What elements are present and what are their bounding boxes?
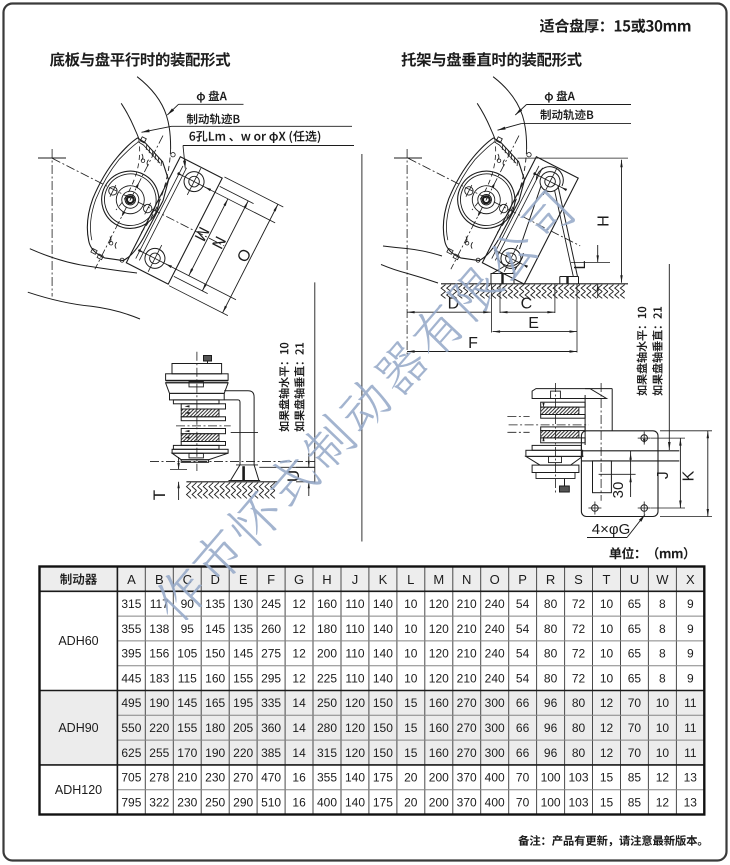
svg-text:240: 240 (485, 597, 505, 611)
svg-text:300: 300 (485, 746, 505, 760)
svg-text:110: 110 (345, 647, 364, 661)
svg-text:65: 65 (628, 597, 642, 611)
svg-text:70: 70 (628, 746, 642, 760)
svg-text:72: 72 (572, 597, 586, 611)
svg-text:11: 11 (684, 721, 697, 735)
svg-text:360: 360 (261, 721, 281, 735)
svg-text:54: 54 (516, 597, 530, 611)
svg-text:W: W (656, 572, 669, 587)
svg-text:12: 12 (292, 671, 306, 685)
svg-text:A: A (127, 572, 136, 587)
svg-text:10: 10 (404, 647, 418, 661)
svg-text:ADH90: ADH90 (58, 721, 98, 735)
svg-text:J: J (352, 572, 359, 587)
svg-text:120: 120 (429, 647, 449, 661)
svg-text:110: 110 (345, 622, 364, 636)
svg-text:795: 795 (121, 795, 141, 809)
svg-text:270: 270 (233, 771, 253, 785)
svg-text:10: 10 (600, 671, 614, 685)
svg-text:80: 80 (572, 721, 586, 735)
svg-text:315: 315 (317, 746, 337, 760)
svg-text:150: 150 (205, 647, 225, 661)
svg-text:20: 20 (404, 795, 418, 809)
svg-text:10: 10 (656, 696, 670, 710)
svg-text:96: 96 (544, 746, 558, 760)
svg-text:200: 200 (429, 771, 449, 785)
svg-text:K: K (379, 572, 388, 587)
svg-text:370: 370 (457, 795, 477, 809)
svg-text:210: 210 (457, 597, 477, 611)
svg-text:15: 15 (404, 696, 418, 710)
svg-text:12: 12 (600, 721, 614, 735)
svg-text:175: 175 (373, 771, 393, 785)
svg-text:140: 140 (345, 795, 365, 809)
svg-text:103: 103 (568, 771, 588, 785)
svg-text:9: 9 (687, 647, 694, 661)
svg-text:175: 175 (373, 795, 393, 809)
svg-text:183: 183 (149, 671, 169, 685)
svg-text:F: F (468, 335, 478, 352)
svg-text:445: 445 (121, 671, 141, 685)
svg-text:705: 705 (121, 771, 141, 785)
svg-text:8: 8 (659, 647, 666, 661)
svg-text:120: 120 (345, 696, 365, 710)
svg-text:245: 245 (261, 597, 281, 611)
svg-text:270: 270 (457, 696, 477, 710)
svg-text:385: 385 (261, 746, 281, 760)
svg-text:12: 12 (292, 597, 306, 611)
svg-text:L: L (572, 260, 589, 269)
svg-text:54: 54 (516, 622, 530, 636)
svg-text:R: R (546, 572, 555, 587)
svg-text:170: 170 (177, 746, 197, 760)
svg-text:335: 335 (261, 696, 281, 710)
svg-text:8: 8 (659, 671, 666, 685)
svg-text:355: 355 (317, 771, 337, 785)
svg-text:14: 14 (292, 746, 306, 760)
svg-text:250: 250 (205, 795, 225, 809)
svg-text:400: 400 (485, 795, 505, 809)
svg-text:12: 12 (292, 622, 306, 636)
svg-text:120: 120 (429, 671, 449, 685)
svg-text:270: 270 (457, 746, 477, 760)
svg-text:135: 135 (233, 622, 253, 636)
svg-text:315: 315 (121, 597, 141, 611)
svg-text:15: 15 (404, 746, 418, 760)
svg-text:80: 80 (544, 597, 558, 611)
svg-text:155: 155 (233, 671, 253, 685)
svg-text:96: 96 (544, 696, 558, 710)
svg-text:230: 230 (205, 771, 225, 785)
svg-text:180: 180 (205, 721, 225, 735)
svg-text:N: N (462, 572, 471, 587)
svg-text:70: 70 (516, 795, 530, 809)
svg-text:160: 160 (205, 671, 225, 685)
svg-text:300: 300 (485, 721, 505, 735)
svg-text:11: 11 (684, 746, 697, 760)
svg-text:80: 80 (544, 671, 558, 685)
svg-text:14: 14 (292, 696, 306, 710)
svg-text:P: P (518, 572, 527, 587)
svg-text:9: 9 (687, 622, 694, 636)
svg-text:14: 14 (292, 721, 306, 735)
svg-text:C: C (521, 296, 533, 313)
svg-text:15: 15 (404, 721, 418, 735)
svg-text:80: 80 (544, 647, 558, 661)
svg-text:165: 165 (205, 696, 225, 710)
svg-text:F: F (267, 572, 275, 587)
svg-text:9: 9 (687, 671, 694, 685)
svg-text:66: 66 (516, 746, 530, 760)
svg-text:625: 625 (121, 746, 141, 760)
svg-text:205: 205 (233, 721, 253, 735)
svg-text:280: 280 (317, 721, 337, 735)
svg-text:145: 145 (205, 622, 225, 636)
svg-text:370: 370 (457, 771, 477, 785)
svg-text:145: 145 (177, 696, 197, 710)
svg-text:72: 72 (572, 671, 586, 685)
svg-text:X: X (686, 572, 695, 587)
svg-text:103: 103 (568, 795, 588, 809)
svg-text:10: 10 (600, 622, 614, 636)
svg-text:270: 270 (457, 721, 477, 735)
svg-text:B: B (155, 572, 164, 587)
svg-text:130: 130 (233, 597, 253, 611)
svg-text:85: 85 (628, 795, 642, 809)
svg-text:550: 550 (121, 721, 141, 735)
svg-text:210: 210 (177, 771, 197, 785)
svg-text:10: 10 (600, 647, 614, 661)
svg-text:260: 260 (261, 622, 281, 636)
svg-text:180: 180 (317, 622, 337, 636)
svg-text:210: 210 (457, 671, 477, 685)
svg-text:300: 300 (485, 696, 505, 710)
svg-text:T: T (603, 572, 611, 587)
svg-text:H: H (596, 215, 613, 227)
svg-text:10: 10 (600, 597, 614, 611)
svg-text:110: 110 (345, 597, 364, 611)
svg-text:11: 11 (684, 696, 697, 710)
svg-text:210: 210 (457, 647, 477, 661)
svg-text:13: 13 (684, 795, 698, 809)
svg-text:65: 65 (628, 647, 642, 661)
svg-text:65: 65 (628, 671, 642, 685)
svg-text:10: 10 (656, 746, 670, 760)
svg-text:156: 156 (149, 647, 169, 661)
svg-text:275: 275 (261, 647, 281, 661)
svg-text:322: 322 (149, 795, 169, 809)
svg-text:120: 120 (429, 597, 449, 611)
svg-text:20: 20 (404, 771, 418, 785)
svg-text:150: 150 (373, 746, 393, 760)
svg-text:150: 150 (373, 721, 393, 735)
svg-text:9: 9 (687, 597, 694, 611)
svg-text:200: 200 (317, 647, 337, 661)
svg-text:355: 355 (121, 622, 141, 636)
svg-text:140: 140 (345, 771, 365, 785)
svg-text:200: 200 (429, 795, 449, 809)
svg-text:10: 10 (404, 622, 418, 636)
svg-text:8: 8 (659, 622, 666, 636)
svg-text:278: 278 (149, 771, 169, 785)
svg-text:G: G (294, 572, 304, 587)
svg-text:70: 70 (628, 721, 642, 735)
svg-text:240: 240 (485, 647, 505, 661)
svg-text:140: 140 (373, 647, 393, 661)
svg-text:12: 12 (600, 696, 614, 710)
svg-text:S: S (574, 572, 583, 587)
svg-text:240: 240 (485, 622, 505, 636)
svg-text:O: O (490, 572, 500, 587)
svg-text:70: 70 (516, 771, 530, 785)
svg-text:255: 255 (149, 746, 169, 760)
svg-text:M: M (433, 572, 444, 587)
svg-text:295: 295 (261, 671, 281, 685)
svg-text:120: 120 (345, 721, 365, 735)
svg-text:395: 395 (121, 647, 141, 661)
svg-text:240: 240 (485, 671, 505, 685)
svg-text:T: T (150, 490, 169, 500)
svg-text:250: 250 (317, 696, 337, 710)
svg-text:470: 470 (261, 771, 281, 785)
svg-text:10: 10 (404, 597, 418, 611)
svg-text:160: 160 (429, 721, 449, 735)
svg-text:66: 66 (516, 696, 530, 710)
svg-text:80: 80 (544, 622, 558, 636)
svg-text:115: 115 (178, 671, 197, 685)
svg-text:4×φG: 4×φG (592, 521, 631, 538)
svg-text:145: 145 (233, 647, 253, 661)
svg-text:210: 210 (457, 622, 477, 636)
svg-text:190: 190 (149, 696, 169, 710)
svg-text:ADH60: ADH60 (58, 634, 98, 648)
svg-text:15: 15 (600, 795, 614, 809)
svg-text:70: 70 (628, 696, 642, 710)
svg-text:66: 66 (516, 721, 530, 735)
svg-text:13: 13 (684, 771, 698, 785)
svg-text:12: 12 (292, 647, 306, 661)
svg-text:10: 10 (404, 671, 418, 685)
svg-text:ADH120: ADH120 (55, 783, 102, 797)
svg-text:95: 95 (181, 622, 195, 636)
svg-text:230: 230 (177, 795, 197, 809)
svg-text:100: 100 (541, 771, 561, 785)
svg-text:138: 138 (149, 622, 169, 636)
svg-text:140: 140 (373, 597, 393, 611)
svg-text:J: J (655, 471, 672, 479)
svg-text:12: 12 (600, 746, 614, 760)
svg-text:290: 290 (233, 795, 253, 809)
svg-text:220: 220 (149, 721, 169, 735)
svg-text:72: 72 (572, 622, 586, 636)
svg-text:E: E (239, 572, 248, 587)
svg-text:110: 110 (345, 671, 364, 685)
svg-text:54: 54 (516, 647, 530, 661)
svg-text:96: 96 (544, 721, 558, 735)
svg-text:190: 190 (205, 746, 225, 760)
svg-text:195: 195 (233, 696, 253, 710)
svg-text:120: 120 (429, 622, 449, 636)
svg-text:510: 510 (261, 795, 281, 809)
svg-text:K: K (681, 470, 698, 481)
svg-text:16: 16 (292, 795, 306, 809)
svg-text:150: 150 (373, 696, 393, 710)
svg-text:80: 80 (572, 696, 586, 710)
svg-text:135: 135 (205, 597, 225, 611)
svg-text:160: 160 (317, 597, 337, 611)
svg-text:12: 12 (656, 771, 670, 785)
svg-text:400: 400 (485, 771, 505, 785)
svg-text:220: 220 (233, 746, 253, 760)
svg-text:L: L (407, 572, 414, 587)
svg-text:H: H (322, 572, 331, 587)
svg-text:160: 160 (429, 696, 449, 710)
svg-text:105: 105 (177, 647, 197, 661)
svg-text:8: 8 (659, 597, 666, 611)
svg-text:65: 65 (628, 622, 642, 636)
svg-text:495: 495 (121, 696, 141, 710)
svg-text:16: 16 (292, 771, 306, 785)
svg-text:155: 155 (177, 721, 197, 735)
svg-text:120: 120 (345, 746, 365, 760)
svg-text:140: 140 (373, 671, 393, 685)
svg-text:10: 10 (656, 721, 670, 735)
svg-text:85: 85 (628, 771, 642, 785)
svg-text:E: E (528, 315, 539, 332)
svg-text:15: 15 (600, 771, 614, 785)
svg-text:54: 54 (516, 671, 530, 685)
svg-text:30: 30 (610, 482, 627, 499)
svg-text:225: 225 (317, 671, 337, 685)
svg-text:12: 12 (656, 795, 670, 809)
svg-text:140: 140 (373, 622, 393, 636)
svg-text:100: 100 (541, 795, 561, 809)
svg-text:400: 400 (317, 795, 337, 809)
svg-text:160: 160 (429, 746, 449, 760)
svg-text:80: 80 (572, 746, 586, 760)
svg-text:U: U (630, 572, 639, 587)
svg-text:72: 72 (572, 647, 586, 661)
